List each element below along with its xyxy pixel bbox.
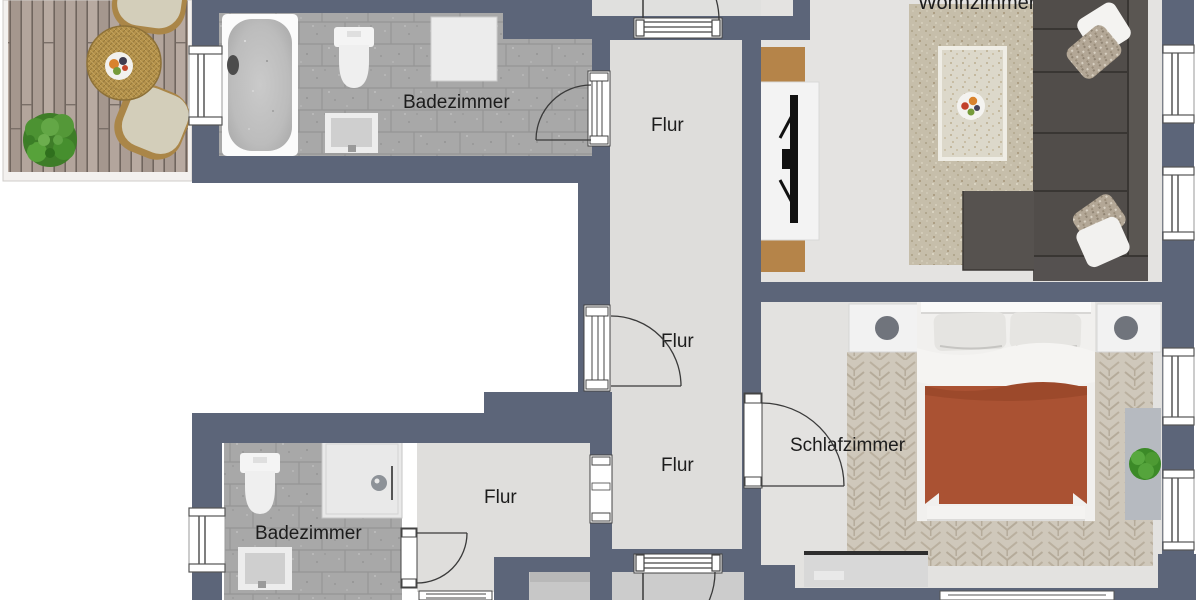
svg-text:Flur: Flur bbox=[484, 487, 517, 508]
svg-text:Wohnzimmer: Wohnzimmer bbox=[918, 0, 1036, 14]
svg-text:Flur: Flur bbox=[651, 115, 684, 136]
svg-text:Flur: Flur bbox=[661, 331, 694, 352]
svg-text:Badezimmer: Badezimmer bbox=[403, 92, 510, 113]
svg-text:Badezimmer: Badezimmer bbox=[255, 523, 362, 544]
svg-text:Schlafzimmer: Schlafzimmer bbox=[790, 435, 906, 456]
svg-text:Flur: Flur bbox=[661, 455, 694, 476]
